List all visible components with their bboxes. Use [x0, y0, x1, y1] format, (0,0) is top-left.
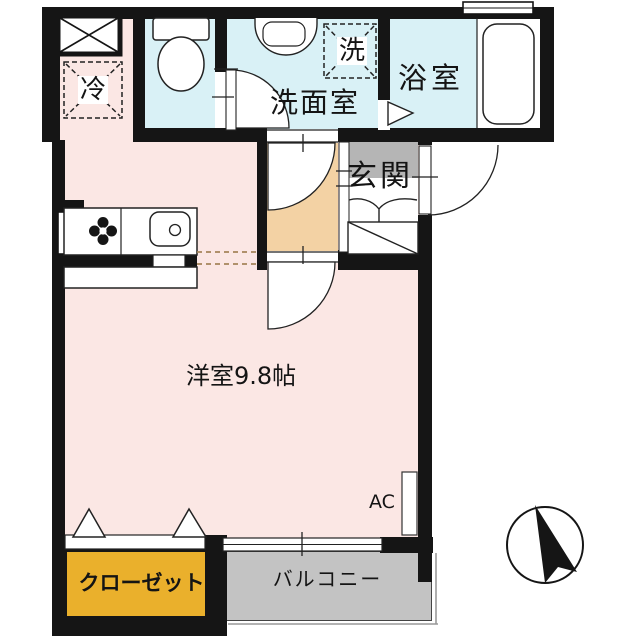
folding-door-triangle-icon — [73, 509, 105, 537]
closet-door-band — [65, 509, 206, 549]
floor-plan: 洋室9.8帖 洗面室 浴室 玄関 冷 洗 AC クローゼット バルコニー — [0, 0, 640, 640]
entrance-label: 玄関 — [347, 162, 413, 192]
closet-label: クローゼット — [63, 573, 220, 594]
balcony-label: バルコニー — [225, 569, 430, 589]
washbasin-icon — [255, 18, 317, 55]
washroom-label: 洗面室 — [270, 89, 360, 117]
living-room-label: 洋室9.8帖 — [186, 364, 296, 388]
toilet-icon — [153, 18, 209, 91]
bathroom-label: 浴室 — [398, 64, 464, 93]
bathtub-icon — [477, 18, 534, 128]
shaft-x-box-icon — [58, 16, 120, 54]
folding-door-triangle-icon — [388, 102, 413, 125]
fridge-label: 冷 — [78, 76, 108, 104]
kitchen-sink-icon — [150, 212, 190, 246]
compass-north-arrow-icon — [507, 505, 583, 583]
folding-door-triangle-icon — [173, 509, 206, 537]
ac-label: AC — [369, 493, 395, 512]
ac-unit-box — [402, 472, 417, 535]
shoe-cabinet-icon — [348, 222, 418, 254]
kitchen-boundary-dashes — [197, 252, 257, 264]
laundry-label: 洗 — [337, 37, 367, 65]
